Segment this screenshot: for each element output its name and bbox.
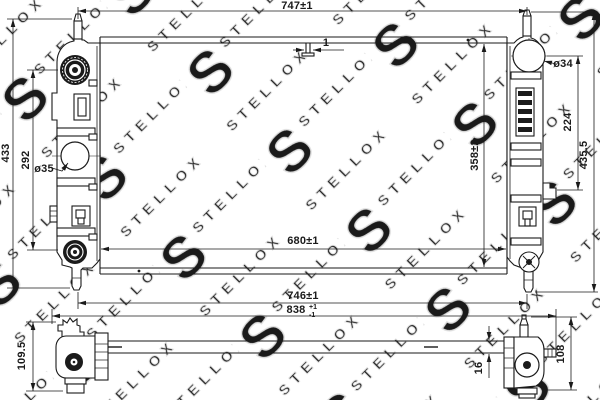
dim-left-overall-label: 433 [0, 144, 12, 163]
left-fitting-hose-pipe [65, 378, 86, 393]
dim-core-thickness-label: 16 [473, 362, 485, 375]
right-fitting-flange [504, 337, 514, 388]
dim-overall-tol-plus: +1 [309, 304, 317, 311]
dim-right-port-dia-label: ø34 [553, 58, 573, 70]
left-upper-slot [74, 94, 90, 120]
dim-left-port-dia-label: ø35 [34, 163, 54, 175]
left-fitting-port [65, 353, 83, 371]
drawing-canvas: S STELLOX STELLOX [0, 0, 600, 400]
dim-tab-label: 1 [323, 37, 329, 49]
right-fitting-hose-pipe [517, 388, 537, 398]
dim-right-overall-label: 435.5 [578, 141, 590, 170]
dim-core-width-label: 680±1 [287, 235, 319, 247]
left-fitting-flange [95, 333, 108, 380]
dim-top-width-label: 747±1 [281, 0, 313, 12]
left-edge-clip [50, 206, 57, 222]
radiator-technical-drawing: S STELLOX STELLOX [0, 0, 600, 400]
right-clip [519, 207, 536, 226]
drain-valve [519, 252, 539, 272]
dim-left-ports-label: 292 [20, 151, 32, 170]
dim-bottom-right-height-label: 108 [555, 345, 567, 364]
left-tank [50, 14, 101, 290]
drain-cap [63, 240, 87, 264]
dim-overall-tol-minus: -1 [309, 312, 315, 319]
header-stud-bottom [138, 270, 141, 273]
dim-core-height-label: 358±2 [469, 139, 481, 171]
dim-bottom-left-height-label: 109.5 [16, 342, 28, 371]
dim-right-ports-label: 224 [562, 112, 574, 132]
filler-cap [60, 55, 90, 85]
left-lower-bracket [72, 206, 90, 226]
right-ladder-feature [516, 88, 534, 136]
header-stud-top [467, 39, 470, 42]
dim-overall-width-label: 838 [287, 304, 306, 316]
dim-pipes-width-label: 746±1 [287, 290, 319, 302]
right-fitting-port [515, 353, 539, 377]
